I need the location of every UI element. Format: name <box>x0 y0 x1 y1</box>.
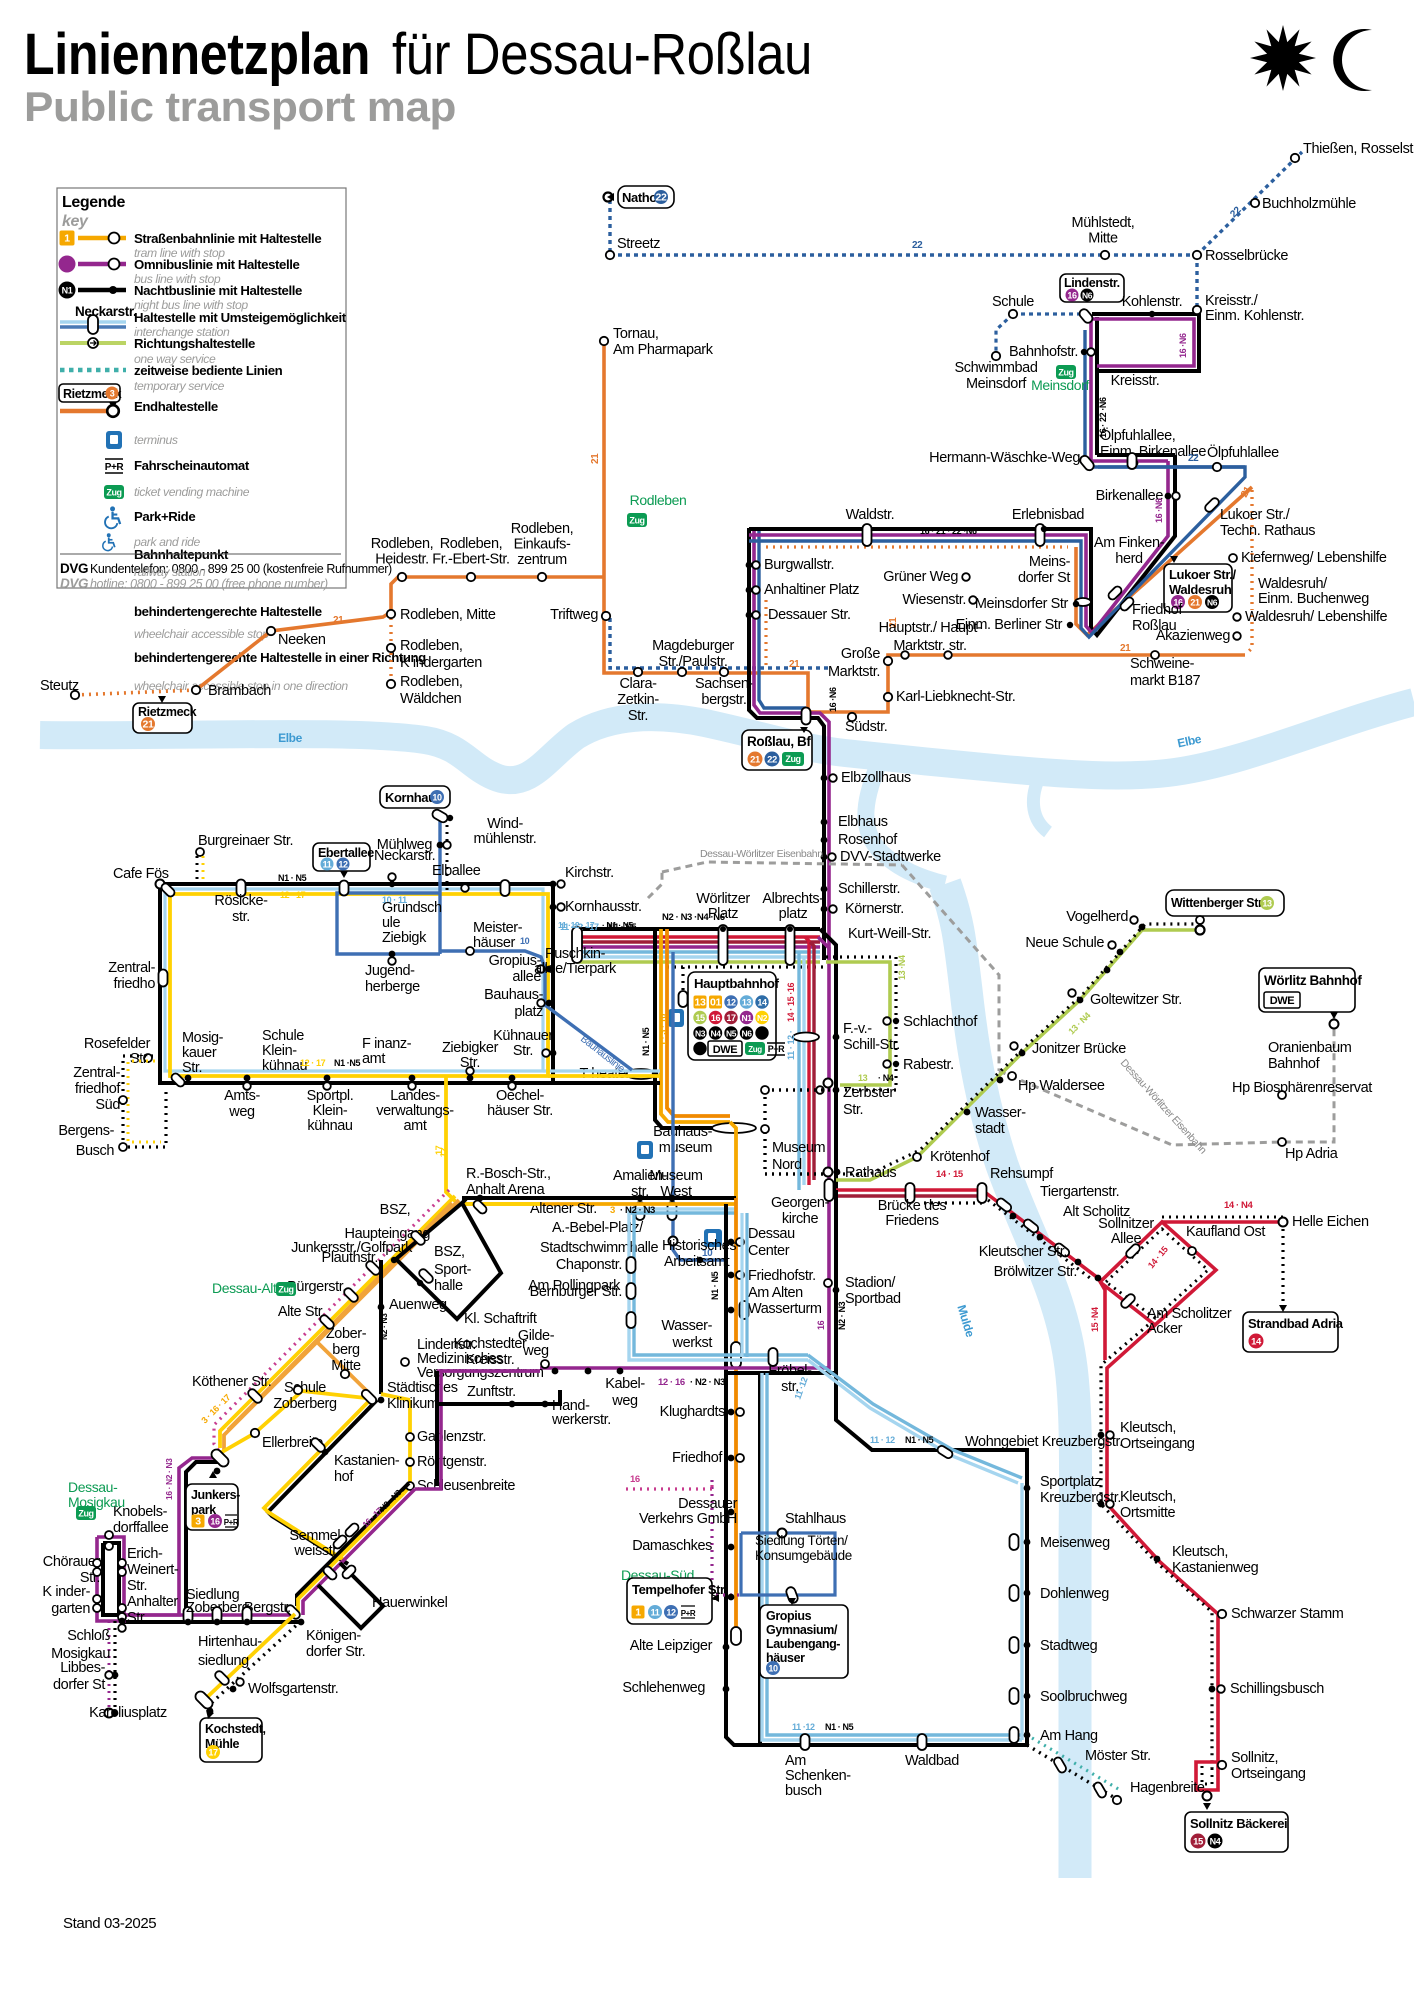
svg-text:Hp Waldersee: Hp Waldersee <box>1018 1078 1105 1094</box>
svg-text:N1 ·N5: N1 ·N5 <box>334 1058 361 1068</box>
svg-text:Schill-Str.: Schill-Str. <box>843 1037 900 1053</box>
svg-text:DWE: DWE <box>1270 995 1295 1007</box>
svg-text:Dessauer Str.: Dessauer Str. <box>768 607 851 623</box>
svg-text:Neeken: Neeken <box>278 632 326 648</box>
svg-text:Weinert-: Weinert- <box>127 1562 179 1578</box>
svg-text:Stadtschwimmhalle: Stadtschwimmhalle <box>540 1240 658 1256</box>
svg-text:Endhaltestelle: Endhaltestelle <box>134 399 218 414</box>
svg-text:Schule: Schule <box>262 1028 304 1044</box>
svg-text:Friedens: Friedens <box>885 1213 938 1229</box>
svg-text:museum: museum <box>659 1140 713 1156</box>
svg-text:Konsumgebäude: Konsumgebäude <box>755 1548 852 1563</box>
svg-text:K indergarten: K indergarten <box>400 655 482 671</box>
svg-text:Zug: Zug <box>278 1285 293 1295</box>
svg-text:11 ·12 · 17: 11 ·12 · 17 <box>558 920 595 930</box>
svg-text:Wäldchen: Wäldchen <box>400 691 462 707</box>
svg-text:Ortseingang: Ortseingang <box>1120 1436 1195 1452</box>
svg-text:terminus: terminus <box>134 433 178 447</box>
svg-text:weisstr.: weisstr. <box>293 1543 339 1559</box>
svg-text:dorfer St: dorfer St <box>53 1677 105 1693</box>
svg-text:Center: Center <box>748 1243 790 1259</box>
svg-text:P+R: P+R <box>768 1044 785 1054</box>
svg-text:Zerbster: Zerbster <box>843 1085 894 1101</box>
svg-text:platz: platz <box>514 1004 543 1020</box>
svg-text:Ortseingang: Ortseingang <box>1231 1766 1306 1782</box>
svg-text:Fröbel-: Fröbel- <box>768 1363 812 1379</box>
svg-text:Nord: Nord <box>772 1157 802 1173</box>
svg-text:Zug: Zug <box>748 1045 762 1054</box>
svg-text:Gablenzstr.: Gablenzstr. <box>417 1429 486 1445</box>
svg-text:dorfer St: dorfer St <box>1018 570 1070 586</box>
svg-text:Kurt-Weill-Str.: Kurt-Weill-Str. <box>848 926 931 942</box>
svg-text:DVG: DVG <box>60 576 89 591</box>
svg-text:weg: weg <box>228 1104 255 1120</box>
svg-text:Burgwallstr.: Burgwallstr. <box>764 557 834 573</box>
svg-text:Dohlenweg: Dohlenweg <box>1040 1586 1109 1602</box>
svg-text:Buchholzmühle: Buchholzmühle <box>1262 196 1356 212</box>
svg-text:Zunftstr.: Zunftstr. <box>467 1384 516 1400</box>
svg-text:Landes-: Landes- <box>390 1088 440 1104</box>
svg-text:temporary service: temporary service <box>134 379 225 393</box>
svg-text:DVG: DVG <box>60 561 88 576</box>
svg-text:22: 22 <box>1188 453 1199 464</box>
svg-text:Schwimmbad: Schwimmbad <box>954 360 1037 376</box>
svg-text:Zug: Zug <box>785 754 800 764</box>
svg-text:Liniennetzplan: Liniennetzplan <box>24 22 370 87</box>
svg-text:Heidestr.: Heidestr. <box>375 552 429 568</box>
svg-text:Erich-: Erich- <box>127 1546 163 1562</box>
svg-text:Haltestelle mit Umsteigemöglic: Haltestelle mit Umsteigemöglichkeit <box>134 310 347 325</box>
svg-text:Marktstr.: Marktstr. <box>828 664 880 680</box>
svg-text:Kirchstr.: Kirchstr. <box>565 865 614 881</box>
svg-text:Anhalter: Anhalter <box>127 1594 178 1610</box>
svg-text:N6: N6 <box>1207 598 1218 608</box>
svg-text:Meister-: Meister- <box>473 920 523 936</box>
svg-text:Klein-: Klein- <box>313 1103 348 1119</box>
svg-text:Elballee: Elballee <box>432 863 481 879</box>
svg-text:Str.: Str. <box>127 1578 147 1594</box>
svg-text:P+R: P+R <box>105 462 125 473</box>
svg-text:Waldbad: Waldbad <box>905 1753 959 1769</box>
svg-text:Am Scholitzer: Am Scholitzer <box>1147 1306 1232 1322</box>
svg-text:Südstr.: Südstr. <box>845 719 887 735</box>
svg-text:21: 21 <box>789 659 800 670</box>
svg-text:16 ·N6: 16 ·N6 <box>1154 498 1164 523</box>
svg-text:Am Alten: Am Alten <box>748 1285 803 1301</box>
svg-text:Schillerstr.: Schillerstr. <box>838 881 900 897</box>
svg-text:21: 21 <box>333 615 344 626</box>
svg-text:Fr.-Ebert-Str.: Fr.-Ebert-Str. <box>432 552 509 568</box>
svg-text:BSZ,: BSZ, <box>434 1244 465 1260</box>
svg-text:Rodleben,: Rodleben, <box>400 674 463 690</box>
svg-text:14 · 15 ·16: 14 · 15 ·16 <box>786 982 796 1022</box>
svg-text:3: 3 <box>195 1516 201 1528</box>
svg-text:Rabestr.: Rabestr. <box>903 1057 954 1073</box>
svg-text:Sollnitzer: Sollnitzer <box>1098 1216 1154 1232</box>
svg-text:21: 21 <box>143 719 154 731</box>
svg-text:Str./Paulstr.: Str./Paulstr. <box>659 654 728 670</box>
svg-text:dorffallee: dorffallee <box>113 1520 169 1536</box>
svg-text:berg: berg <box>332 1342 360 1358</box>
svg-text:Rodleben, Mitte: Rodleben, Mitte <box>400 607 496 623</box>
svg-text:Str.: Str. <box>628 708 648 724</box>
svg-text:herberge: herberge <box>365 979 420 995</box>
svg-text:17: 17 <box>208 1748 218 1758</box>
svg-text:Wörlitzer: Wörlitzer <box>696 891 750 907</box>
svg-text:Einm. Kohlenstr.: Einm. Kohlenstr. <box>1205 308 1304 324</box>
svg-text:Kaufland Ost: Kaufland Ost <box>1186 1224 1265 1240</box>
svg-text:Acker: Acker <box>1147 1321 1183 1337</box>
svg-text:Friedhof: Friedhof <box>1132 602 1183 618</box>
svg-text:Hauptstr./ Haupt-: Hauptstr./ Haupt- <box>879 620 982 636</box>
svg-text:21: 21 <box>1120 643 1131 654</box>
svg-text:häuser Str.: häuser Str. <box>487 1103 553 1119</box>
svg-text:Chörauer: Chörauer <box>43 1554 101 1570</box>
svg-text:Magdeburger: Magdeburger <box>652 638 734 654</box>
svg-text:Zoberberg: Zoberberg <box>273 1396 337 1412</box>
svg-text:Schenken-: Schenken- <box>785 1768 851 1784</box>
svg-text:Bahnhof: Bahnhof <box>1268 1056 1321 1072</box>
svg-text:Clara-: Clara- <box>619 676 657 692</box>
svg-text:Tempelhofer Str: Tempelhofer Str <box>632 1582 725 1597</box>
svg-text:friedho: friedho <box>113 976 155 992</box>
svg-text:3: 3 <box>610 1205 615 1216</box>
svg-text:11: 11 <box>651 1608 660 1618</box>
svg-text:Public transport map: Public transport map <box>24 83 456 130</box>
svg-text:12 · 17: 12 · 17 <box>300 1058 326 1068</box>
svg-text:Junkers-: Junkers- <box>191 1488 240 1502</box>
svg-text:10: 10 <box>520 936 530 946</box>
svg-text:Wörlitz Bahnhof: Wörlitz Bahnhof <box>1264 973 1362 988</box>
svg-text:str.: str. <box>232 909 250 925</box>
svg-text:Schweine-: Schweine- <box>1130 656 1195 672</box>
svg-text:10: 10 <box>432 793 442 803</box>
svg-text:15 ·N4: 15 ·N4 <box>1090 1307 1100 1332</box>
svg-text:Sportbad: Sportbad <box>845 1291 901 1307</box>
svg-text:Sachsen-: Sachsen- <box>695 676 754 692</box>
svg-text:Neue Schule: Neue Schule <box>1025 935 1104 951</box>
svg-text:Str.: Str. <box>843 1102 863 1118</box>
svg-text:siedlung: siedlung <box>198 1653 249 1669</box>
svg-text:Richtungshaltestelle: Richtungshaltestelle <box>134 336 255 351</box>
svg-text:Klughardts: Klughardts <box>660 1404 725 1420</box>
svg-text:16 ·N6: 16 ·N6 <box>1178 333 1188 358</box>
svg-text:Königen-: Königen- <box>306 1628 361 1644</box>
svg-text:Sollnitz Bäckerei: Sollnitz Bäckerei <box>1190 1816 1287 1831</box>
svg-text:Zug: Zug <box>78 1509 93 1519</box>
svg-text:Wittenberger Str.: Wittenberger Str. <box>1171 896 1265 910</box>
svg-text:häuser: häuser <box>473 935 516 951</box>
svg-text:Roßlau: Roßlau <box>1132 618 1177 634</box>
svg-text:Grundsch: Grundsch <box>382 900 442 916</box>
svg-text:Zober-: Zober- <box>326 1326 367 1342</box>
svg-text:N1 · N5: N1 · N5 <box>278 873 307 883</box>
svg-text:15: 15 <box>1193 1837 1204 1848</box>
svg-text:weg: weg <box>522 1343 549 1359</box>
svg-text:Am: Am <box>785 1753 806 1769</box>
svg-text:Meinsdorf: Meinsdorf <box>1031 377 1089 393</box>
svg-text:N1 · N5: N1 · N5 <box>825 1722 854 1732</box>
svg-text:N1: N1 <box>62 286 73 296</box>
svg-text:Str.: Str. <box>182 1060 202 1076</box>
svg-text:Karl-Liebknecht-Str.: Karl-Liebknecht-Str. <box>896 689 1015 705</box>
svg-text:Klein-: Klein- <box>262 1043 297 1059</box>
svg-text:Natho: Natho <box>622 190 657 205</box>
svg-text:N5: N5 <box>726 1029 737 1039</box>
svg-text:13: 13 <box>1262 899 1272 909</box>
svg-text:13: 13 <box>858 1073 868 1083</box>
svg-text:11 · 12 ·: 11 · 12 · <box>786 1031 796 1060</box>
svg-text:F inanz-: F inanz- <box>362 1036 412 1052</box>
svg-text:Stahlhaus: Stahlhaus <box>785 1511 846 1527</box>
svg-text:amt: amt <box>404 1118 427 1134</box>
svg-text:Waldesruh: Waldesruh <box>1169 582 1232 597</box>
svg-text:Stadtweg: Stadtweg <box>1040 1638 1098 1654</box>
svg-text:Mosig-: Mosig- <box>182 1030 224 1046</box>
svg-text:Schlachthof: Schlachthof <box>903 1013 978 1030</box>
svg-text:halle: halle <box>434 1278 463 1294</box>
svg-text:Sportplatz: Sportplatz <box>1040 1474 1101 1490</box>
svg-text:Cafe Fös: Cafe Fös <box>113 866 169 882</box>
svg-text:garten: garten <box>51 1601 90 1617</box>
svg-text:Omnibuslinie mit Haltestelle: Omnibuslinie mit Haltestelle <box>134 257 299 272</box>
svg-text:N1: N1 <box>741 1013 752 1023</box>
svg-text:Süd: Süd <box>95 1097 120 1113</box>
svg-text:allee/Tierpark: allee/Tierpark <box>534 961 617 977</box>
svg-text:11: 11 <box>323 860 332 870</box>
svg-text:Wolfsgartenstr.: Wolfsgartenstr. <box>248 1681 338 1697</box>
svg-text:Zetkin-: Zetkin- <box>617 692 659 708</box>
svg-text:Burgreinaer Str.: Burgreinaer Str. <box>198 833 293 849</box>
svg-text:ule: ule <box>382 915 400 931</box>
svg-text:DVV-Stadtwerke: DVV-Stadtwerke <box>840 849 941 865</box>
svg-text:· N2 · N3: · N2 · N3 <box>690 1377 725 1388</box>
svg-text:Kastanien-: Kastanien- <box>334 1453 400 1469</box>
svg-text:Neckarstr.: Neckarstr. <box>75 304 136 319</box>
svg-text:· N4: · N4 <box>878 1073 894 1083</box>
svg-text:Grüner Weg: Grüner Weg <box>883 569 958 585</box>
svg-text:11 ·12: 11 ·12 <box>792 1722 815 1732</box>
svg-text:N1 · N5: N1 · N5 <box>641 1027 651 1056</box>
svg-text:platz: platz <box>779 906 808 922</box>
svg-text:14 · N4: 14 · N4 <box>1224 1200 1253 1211</box>
svg-text:01: 01 <box>710 997 721 1009</box>
svg-text:R.-Bosch-Str.,: R.-Bosch-Str., <box>466 1166 551 1182</box>
svg-text:22: 22 <box>912 240 923 251</box>
svg-text:Ziebigk: Ziebigk <box>382 930 427 946</box>
svg-text:Hermann-Wäschke-Weg: Hermann-Wäschke-Weg <box>929 450 1080 466</box>
svg-text:Kreisstr./: Kreisstr./ <box>1205 293 1259 309</box>
svg-text:Mitte: Mitte <box>1088 231 1118 247</box>
svg-text:Krötenhof: Krötenhof <box>930 1149 991 1165</box>
svg-text:weg: weg <box>611 1393 638 1409</box>
svg-text:Str.: Str. <box>127 1610 147 1626</box>
svg-text:Möster Str.: Möster Str. <box>1085 1748 1151 1764</box>
svg-text:Wohngebiet Kreuzbergstr.: Wohngebiet Kreuzbergstr. <box>965 1434 1123 1450</box>
svg-text:Schule: Schule <box>284 1380 326 1396</box>
svg-text:Jugend-: Jugend- <box>365 963 415 979</box>
svg-text:Rodleben: Rodleben <box>630 492 687 508</box>
svg-text:Techn. Rathaus: Techn. Rathaus <box>1220 523 1315 539</box>
svg-text:15: 15 <box>695 1013 705 1023</box>
svg-text:hotline: 0800 - 899 25 00 (fre: hotline: 0800 - 899 25 00 (free phone nu… <box>90 577 328 591</box>
svg-text:12: 12 <box>726 998 736 1008</box>
svg-text:Rosefelder: Rosefelder <box>84 1036 151 1052</box>
svg-text:P+R: P+R <box>224 1518 239 1527</box>
svg-text:21: 21 <box>590 453 601 464</box>
svg-text:17: 17 <box>726 1013 736 1023</box>
svg-text:Rehsumpf: Rehsumpf <box>990 1166 1054 1182</box>
svg-text:Gilde-: Gilde- <box>518 1328 555 1344</box>
svg-text:Busch: Busch <box>76 1143 115 1159</box>
svg-text:Sport-: Sport- <box>434 1262 472 1278</box>
svg-text:Lukoer Str./: Lukoer Str./ <box>1169 567 1237 582</box>
svg-text:Auenweg: Auenweg <box>389 1297 447 1313</box>
svg-text:Mühlstedt,: Mühlstedt, <box>1072 215 1135 231</box>
svg-text:Soolbruchweg: Soolbruchweg <box>1040 1689 1127 1705</box>
svg-text:N3: N3 <box>695 1029 706 1039</box>
svg-text:12 · 17: 12 · 17 <box>280 890 306 900</box>
svg-text:N1 · N5: N1 · N5 <box>710 1271 720 1300</box>
svg-text:busch: busch <box>785 1783 822 1799</box>
svg-text:Anhaltiner Platz: Anhaltiner Platz <box>764 582 859 598</box>
svg-text:Meins-: Meins- <box>1029 554 1071 570</box>
svg-text:Rodleben,: Rodleben, <box>440 536 503 552</box>
svg-text:Bernburger Str.: Bernburger Str. <box>530 1284 622 1300</box>
svg-text:22: 22 <box>767 755 777 766</box>
svg-text:Einkaufs-: Einkaufs- <box>514 537 571 553</box>
svg-text:16: 16 <box>630 1474 640 1485</box>
svg-text:Rodleben,: Rodleben, <box>400 638 463 654</box>
svg-text:14 · 15: 14 · 15 <box>936 1169 964 1180</box>
svg-text:Hp Adria: Hp Adria <box>1285 1146 1339 1162</box>
svg-text:Ölpfuhlallee: Ölpfuhlallee <box>1207 443 1279 461</box>
svg-text:Kleutsch,: Kleutsch, <box>1120 1420 1176 1436</box>
svg-text:Stand 03-2025: Stand 03-2025 <box>63 1915 156 1932</box>
svg-text:mühlenstr.: mühlenstr. <box>474 831 537 847</box>
svg-text:Puschkin-: Puschkin- <box>545 946 606 962</box>
svg-text:Amts-: Amts- <box>224 1088 260 1104</box>
svg-text:N2: N2 <box>757 1013 768 1023</box>
svg-text:Bauhaus-: Bauhaus- <box>653 1124 712 1140</box>
svg-text:Strandbad Adria: Strandbad Adria <box>1248 1316 1344 1331</box>
svg-text:Bergens-: Bergens- <box>58 1123 114 1139</box>
svg-text:Str.: Str. <box>513 1043 533 1059</box>
svg-text:Wasser-: Wasser- <box>661 1318 712 1334</box>
svg-text:Kiefernweg/ Lebenshilfe: Kiefernweg/ Lebenshilfe <box>1241 550 1387 566</box>
svg-text:Triftweg: Triftweg <box>550 607 598 623</box>
svg-text:21: 21 <box>750 755 761 766</box>
svg-text:Hagenbreite: Hagenbreite <box>1130 1780 1205 1796</box>
svg-text:behindertengerechte Haltestell: behindertengerechte Haltestelle <box>134 604 322 619</box>
svg-text:Neckarstr.: Neckarstr. <box>374 848 435 864</box>
svg-text:K inder-: K inder- <box>42 1584 90 1600</box>
svg-text:BSZ,: BSZ, <box>380 1202 411 1218</box>
svg-text:16 ·N6: 16 ·N6 <box>828 687 838 712</box>
svg-text:Nachtbuslinie mit Haltestelle: Nachtbuslinie mit Haltestelle <box>134 283 302 298</box>
svg-text:Schleusenbreite: Schleusenbreite <box>417 1478 515 1494</box>
svg-text:12: 12 <box>338 860 348 870</box>
svg-text:Große: Große <box>841 646 880 662</box>
svg-text:Kleutsch,: Kleutsch, <box>1120 1489 1176 1505</box>
svg-text:Hauerwinkel: Hauerwinkel <box>372 1595 448 1611</box>
svg-text:Rodleben,: Rodleben, <box>511 521 574 537</box>
svg-text:14: 14 <box>757 998 767 1008</box>
svg-text:Kastanienweg: Kastanienweg <box>1172 1560 1259 1576</box>
svg-text:Brölwitzer Str.: Brölwitzer Str. <box>994 1264 1077 1280</box>
svg-text:Schule: Schule <box>992 294 1034 310</box>
svg-text:Brücke des: Brücke des <box>878 1198 947 1214</box>
svg-text:Gropius: Gropius <box>766 1609 812 1623</box>
svg-text:Waldstr.: Waldstr. <box>846 507 895 523</box>
svg-text:Verkehrs GmbH: Verkehrs GmbH <box>639 1511 737 1527</box>
svg-text:Tiergartenstr.: Tiergartenstr. <box>1040 1184 1119 1200</box>
svg-text:Vogelherd: Vogelherd <box>1066 909 1128 925</box>
svg-text:Kochstedter: Kochstedter <box>454 1336 528 1352</box>
svg-text:Rosselbrücke: Rosselbrücke <box>1205 248 1288 264</box>
svg-text:21: 21 <box>1190 598 1200 608</box>
svg-text:Rösicke-: Rösicke- <box>214 893 268 909</box>
svg-text:Historisches: Historisches <box>662 1238 736 1254</box>
svg-text:railway station: railway station <box>134 565 206 579</box>
svg-text:zentrum: zentrum <box>517 552 567 568</box>
svg-text:P+R: P+R <box>681 1609 696 1618</box>
svg-text:Sollnitz,: Sollnitz, <box>1231 1750 1278 1766</box>
svg-text:Straßenbahnlinie mit Haltestel: Straßenbahnlinie mit Haltestelle <box>134 231 321 246</box>
svg-text:Am Hang: Am Hang <box>1040 1728 1098 1744</box>
svg-text:14: 14 <box>1251 1337 1262 1348</box>
svg-text:1 · 3 · 10: 1 · 3 · 10 <box>658 1014 668 1046</box>
svg-text:N4: N4 <box>1210 1837 1221 1847</box>
svg-text:Thießen, Rosselstr.: Thießen, Rosselstr. <box>1303 141 1414 157</box>
svg-text:1: 1 <box>64 233 70 245</box>
svg-text:Kabel-: Kabel- <box>605 1376 645 1392</box>
svg-text:Rosenhof: Rosenhof <box>838 832 898 848</box>
svg-text:· N1 · N5: · N1 · N5 <box>602 920 634 930</box>
svg-text:16 · N2 · N3: 16 · N2 · N3 <box>164 1458 174 1500</box>
svg-text:Altener Str.: Altener Str. <box>530 1201 597 1217</box>
svg-text:N1 · N5: N1 · N5 <box>905 1435 934 1445</box>
svg-text:Chaponstr.: Chaponstr. <box>556 1257 622 1273</box>
svg-text:Kochstedt,: Kochstedt, <box>205 1722 266 1736</box>
svg-text:Schloß: Schloß <box>67 1628 110 1644</box>
svg-text:verwaltungs-: verwaltungs- <box>376 1103 454 1119</box>
svg-text:Ziebigker: Ziebigker <box>442 1040 499 1056</box>
svg-text:friedhof: friedhof <box>75 1081 122 1097</box>
svg-text:Wiesenstr.: Wiesenstr. <box>902 592 966 608</box>
svg-text:N4: N4 <box>710 1029 721 1039</box>
svg-text:22: 22 <box>656 192 667 204</box>
svg-text:Waldesruh/ Lebenshilfe: Waldesruh/ Lebenshilfe <box>1245 609 1388 625</box>
svg-text:Arbeitsamt: Arbeitsamt <box>664 1254 730 1270</box>
svg-text:Hp Biosphärenreservat: Hp Biosphärenreservat <box>1232 1080 1372 1096</box>
svg-text:Streetz: Streetz <box>617 236 660 252</box>
svg-text:key: key <box>62 213 89 230</box>
svg-text:Einm. Buchenweg: Einm. Buchenweg <box>1258 591 1369 607</box>
svg-text:Zug: Zug <box>629 516 644 526</box>
svg-text:Meinsdorfer Str: Meinsdorfer Str <box>975 596 1069 612</box>
svg-text:Kleutscher Str.: Kleutscher Str. <box>979 1244 1067 1260</box>
svg-text:behindertengerechte Haltestell: behindertengerechte Haltestelle in einer… <box>134 650 426 665</box>
svg-text:N6: N6 <box>741 1029 752 1039</box>
svg-text:Str.: Str. <box>130 1051 150 1067</box>
svg-text:11 · 12: 11 · 12 <box>870 1435 895 1445</box>
svg-text:Lukoer Str./: Lukoer Str./ <box>1220 507 1291 523</box>
svg-text:Wind-: Wind- <box>487 816 523 832</box>
svg-text:13: 13 <box>695 997 706 1009</box>
svg-text:Wasserturm: Wasserturm <box>748 1301 822 1317</box>
svg-text:Dessau-: Dessau- <box>68 1479 118 1495</box>
